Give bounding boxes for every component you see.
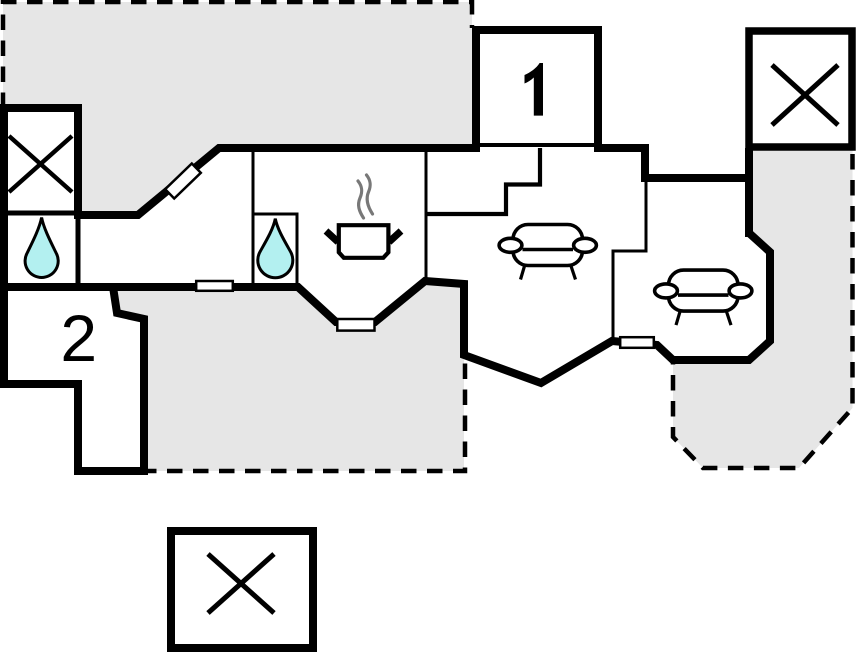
svg-text:2: 2: [60, 301, 97, 375]
